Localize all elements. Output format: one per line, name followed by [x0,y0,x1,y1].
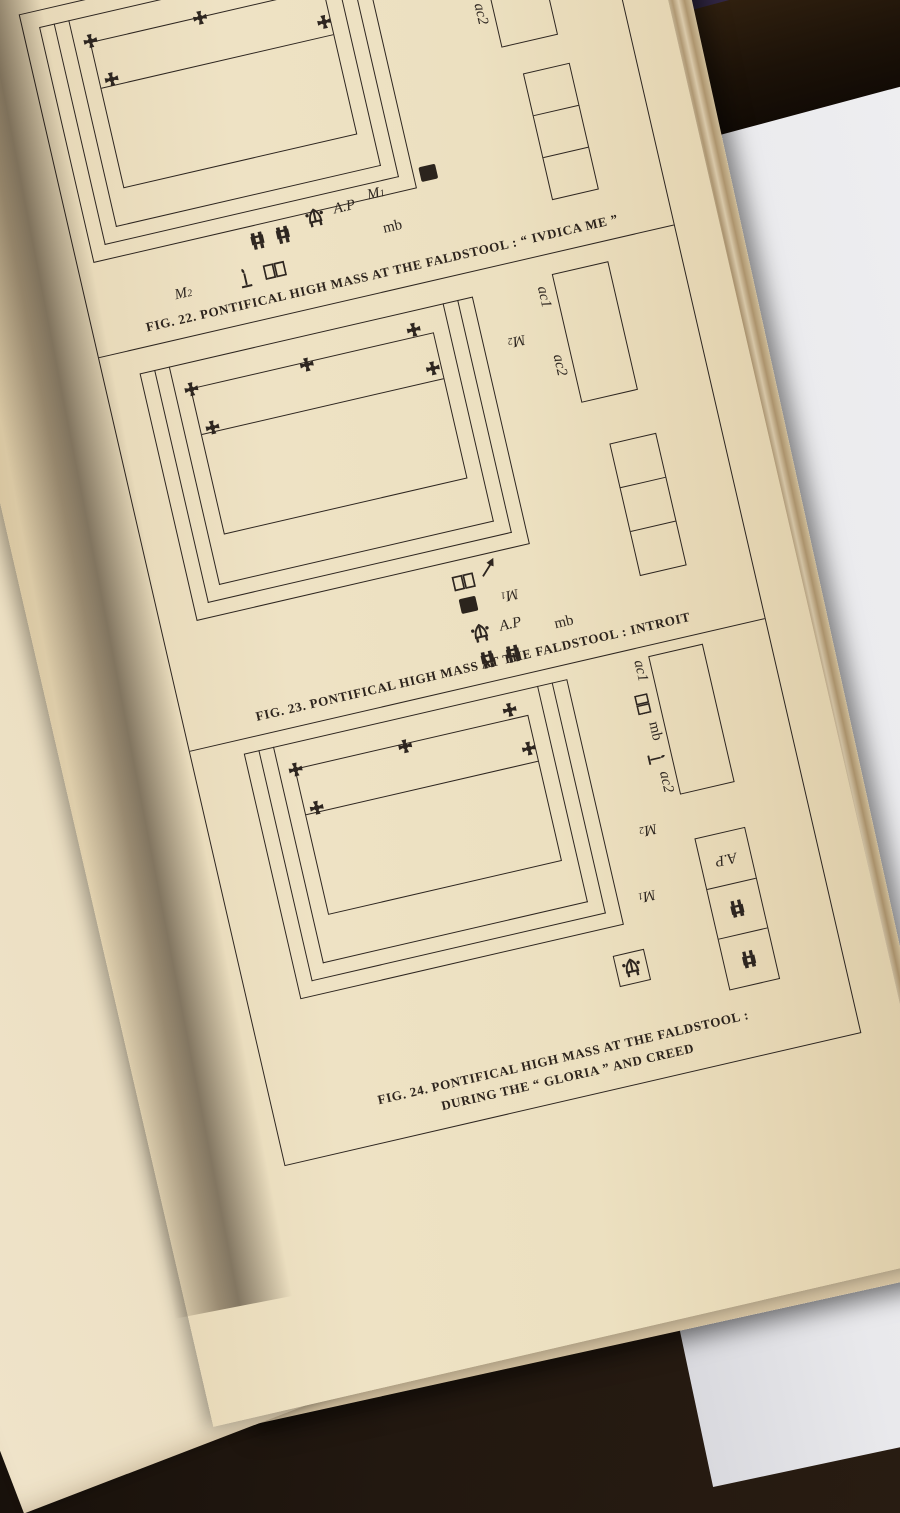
label-m2: M2 [173,284,194,305]
label-ac2: ac2 [470,2,491,27]
label-m2: M2 [506,330,527,351]
altar-plan [39,0,417,263]
label-m2: M2 [637,819,658,840]
altar-plan [244,679,624,999]
fig24-caption-line2: DURING THE “ GLORIA ” AND CREED [278,1001,857,1153]
label-ap: A.P [498,614,523,636]
sedilia-bench [609,433,686,576]
acolytes-bench [552,261,638,403]
label-ac1: ac1 [533,285,554,310]
altar-band [202,378,444,435]
book-photo: { "colors":{"page":"#ecdfc0","ink":"#2e2… [0,0,900,1200]
bishop-mitre-icon [469,621,493,645]
label-m1: M1 [636,885,657,906]
faldstool-icon [459,596,479,614]
chaplain-icon [726,898,748,920]
label-ac1: ac1 [629,658,650,683]
open-book-icon [633,693,652,716]
arrow-icon [476,556,500,580]
open-book-icon [262,260,287,281]
open-book-icon [451,572,476,593]
bugia-candle-icon [646,749,668,768]
chaplain-icon [738,948,760,970]
sedilia-bench: A.P [694,827,780,991]
chaplain-icon [247,230,269,252]
label-ac2: ac2 [549,353,570,378]
faldstool-icon [418,164,438,182]
fig24-caption-line1: FIG. 24. PONTIFICAL HIGH MASS AT THE FAL… [274,981,853,1133]
label-ap: A.P [713,848,738,870]
label-m1: M1 [499,584,520,605]
bishop-mitre-icon [303,206,327,230]
chaplain-icon [272,224,294,246]
label-mb: mb [644,720,665,743]
seated-bishop-icon [613,949,651,987]
fig24-caption: FIG. 24. PONTIFICAL HIGH MASS AT THE FAL… [274,981,858,1153]
label-ac2: ac2 [655,770,676,795]
label-m1: M1 [366,184,387,205]
altar-band [101,34,333,89]
label-ap: A.P [332,197,357,219]
bugia-candle-icon [235,266,256,290]
altar-band [306,761,538,816]
label-mb: mb [381,217,404,238]
sedilia-bench [523,63,599,200]
label-mb: mb [553,612,576,633]
